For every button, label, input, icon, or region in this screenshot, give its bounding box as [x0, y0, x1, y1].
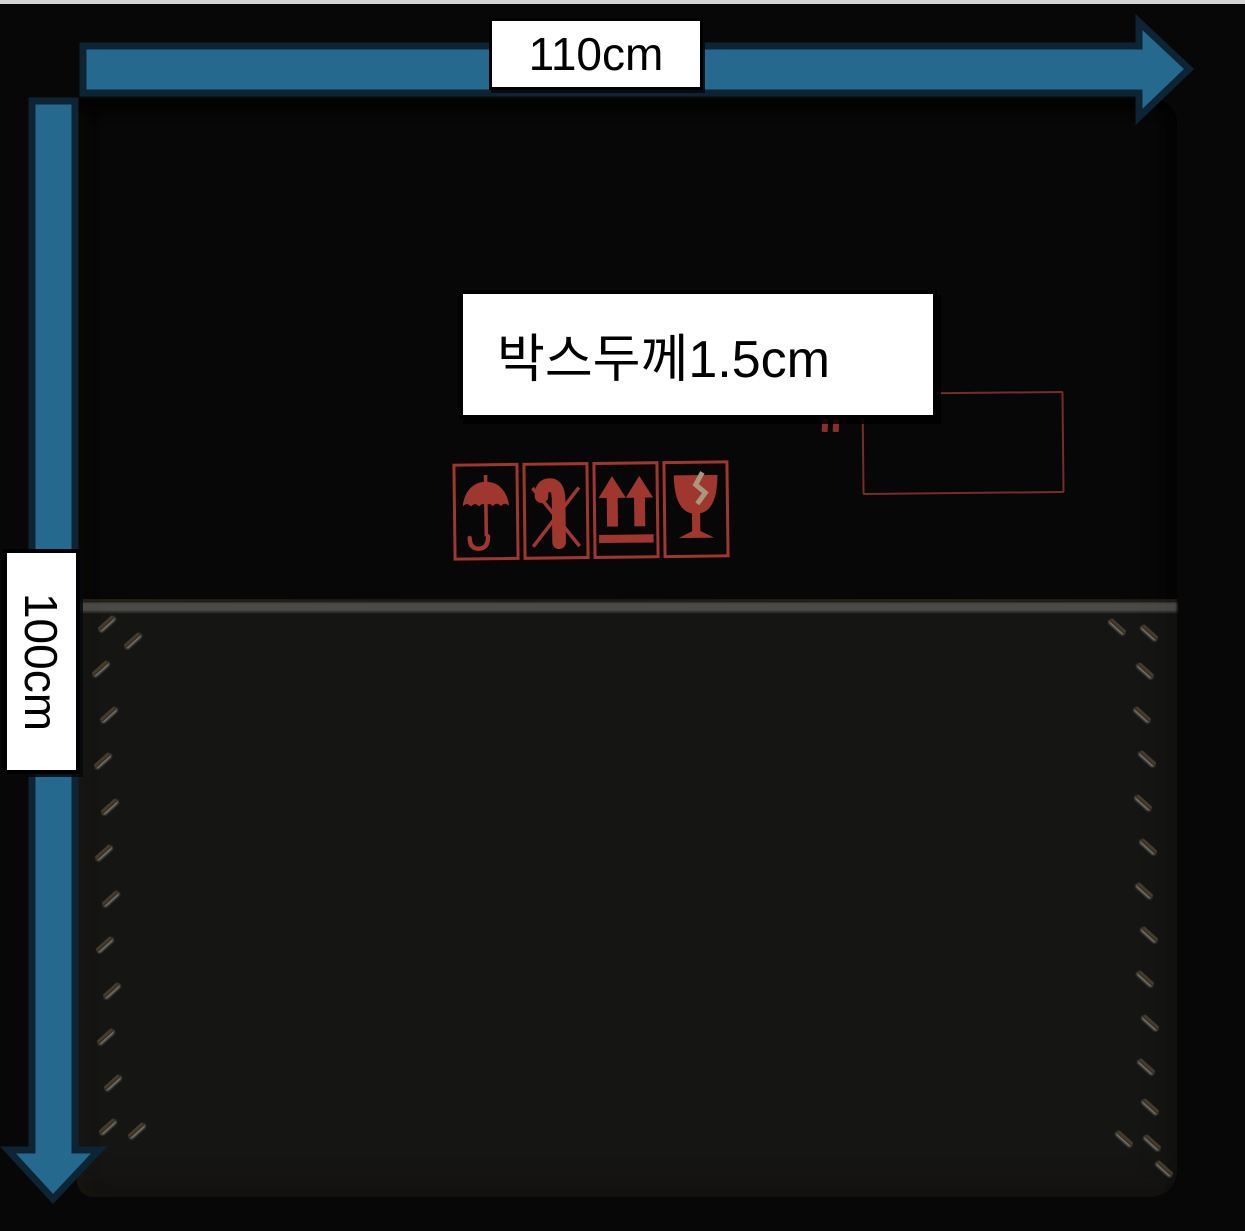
stitch-mark: [91, 660, 109, 676]
stitch-mark: [1156, 1160, 1174, 1176]
stitches-layer: [77, 99, 1177, 1197]
stitch-mark: [1144, 1134, 1162, 1150]
stitch-mark: [1134, 706, 1152, 722]
stitch-mark: [1135, 794, 1153, 810]
stitch-mark: [100, 798, 118, 814]
height-label: 100cm: [3, 549, 80, 774]
stitch-mark: [1142, 1098, 1160, 1114]
stitch-mark: [1141, 926, 1159, 942]
photo-scene: 110cm 100cm 박스두께1.5cm: [0, 0, 1245, 1231]
stitch-mark: [1116, 1130, 1134, 1146]
stitch-mark: [1136, 882, 1154, 898]
stitch-mark: [101, 890, 119, 906]
stitch-mark: [1139, 750, 1157, 766]
stitch-mark: [1142, 1014, 1160, 1030]
stitch-mark: [102, 982, 120, 998]
stitch-mark: [98, 1118, 116, 1134]
stitch-mark: [1140, 838, 1158, 854]
stitch-mark: [95, 936, 113, 952]
stitch-mark: [94, 844, 112, 860]
stitch-mark: [97, 615, 115, 631]
stitch-mark: [1137, 970, 1155, 986]
height-label-text: 100cm: [15, 592, 69, 730]
stitch-mark: [1137, 662, 1155, 678]
cardboard-box: [77, 99, 1177, 1197]
stitch-mark: [127, 1122, 145, 1138]
stitch-mark: [93, 752, 111, 768]
stitch-mark: [96, 1028, 114, 1044]
stitch-mark: [103, 1074, 121, 1090]
stitch-mark: [1109, 618, 1127, 634]
top-edge-strip: [0, 0, 1245, 4]
width-label: 110cm: [489, 18, 703, 90]
stitch-mark: [1138, 1058, 1156, 1074]
thickness-label: 박스두께1.5cm: [459, 290, 937, 419]
stitch-mark: [99, 706, 117, 722]
stitch-mark: [123, 632, 141, 648]
thickness-label-text: 박스두께1.5cm: [497, 317, 830, 392]
width-label-text: 110cm: [529, 27, 664, 81]
stitch-mark: [1141, 624, 1159, 640]
